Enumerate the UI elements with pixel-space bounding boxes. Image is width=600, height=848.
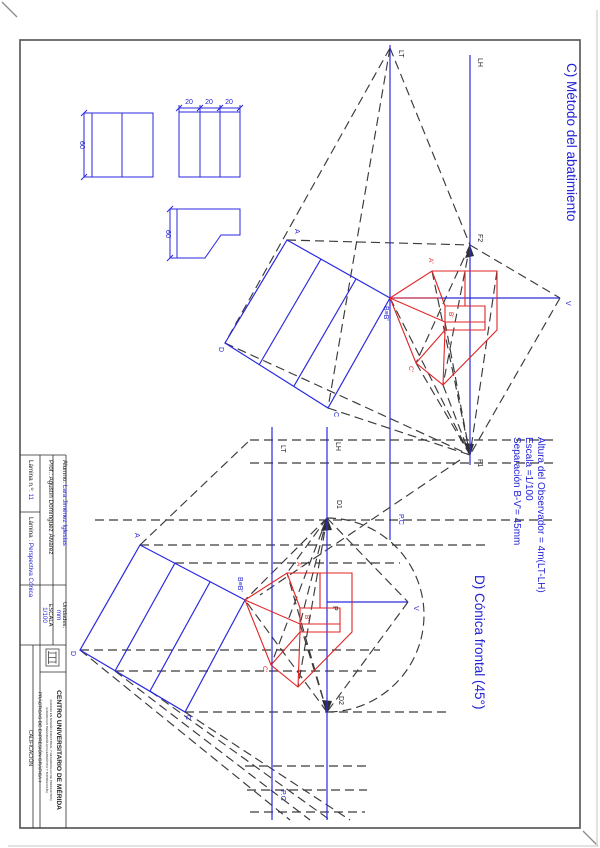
label-lh-lower: LH	[334, 442, 341, 451]
title-block: Alumno: Lara Jiménez Iglesias Prof.: Agu…	[20, 455, 68, 828]
label-v-lower: V	[412, 606, 419, 611]
lamina-num-row: Lámina n.º: 11	[27, 460, 34, 500]
label-d2: D2	[337, 696, 344, 705]
orthographic-views: 60 20 20 20 60	[78, 99, 243, 261]
label-c-prime-lower: C'	[261, 666, 268, 672]
plan-square-upper	[225, 240, 390, 408]
practicas-label: PRÁCTICAS DE EXPRESIÓN GRÁFICA-I	[37, 692, 44, 782]
label-b-prime-upper: B'	[447, 312, 454, 318]
label-lt-lower: LT	[279, 445, 286, 453]
label-lh-upper: LH	[476, 58, 483, 67]
lamina-num-label: Lámina n.º:	[27, 460, 34, 493]
lamina-num-value: 11	[27, 493, 34, 500]
dim-label-20-2: 20	[205, 99, 213, 106]
escala-value: 1/100	[41, 607, 48, 623]
label-c-prime-upper: C'	[407, 366, 414, 372]
plan-square-lower	[80, 545, 245, 712]
label-b-lower: B≡B'	[236, 577, 243, 592]
label-v-upper: V	[564, 301, 571, 306]
corner-mark-bottom-right	[583, 831, 598, 846]
unidades-value: mm	[55, 610, 62, 621]
centro-title: CENTRO UNIVERSITARIO DE MÉRIDA	[55, 690, 64, 810]
lamina-row: Lámina : Perspectiva Cónica	[27, 517, 34, 598]
dim-label-20-1: 20	[185, 99, 193, 106]
prof-label: Prof.:	[47, 460, 54, 476]
alumno-value: Lara Jiménez Iglesias	[61, 485, 68, 546]
page-edges	[2, 2, 598, 846]
university-logo-icon	[46, 649, 59, 666]
grados-line-2: (GRADO EN INGENIERÍA EN GEOMÁTICA Y TOPO…	[45, 707, 49, 792]
label-p-lower: P	[331, 606, 338, 611]
technical-drawing-svg: 60 20 20 20 60 LT LH F2 F1 V P.C A B≡B' …	[0, 0, 600, 848]
dim-label-60-front: 60	[78, 141, 87, 149]
label-a-prime-upper: A'	[427, 258, 434, 264]
construction-lines-upper	[225, 48, 560, 455]
distance-circle-arc	[327, 518, 424, 712]
label-b-upper: B≡B'	[382, 306, 389, 321]
section-d-title: D) Cónica frontal (45°)	[472, 575, 487, 709]
label-c-upper: C	[332, 412, 339, 417]
dim-label-20-3: 20	[225, 99, 233, 106]
label-a-prime-lower: A'	[295, 562, 302, 568]
label-b-prime-lower: B'	[303, 615, 310, 621]
corner-mark-top-left	[2, 2, 17, 17]
label-a-lower: A	[133, 533, 140, 538]
lamina-value: Perspectiva Cónica	[27, 543, 34, 598]
drawing-sheet: 60 20 20 20 60 LT LH F2 F1 V P.C A B≡B' …	[0, 0, 600, 848]
prof-row: Prof.: Agustín Domínguez Álvarez	[47, 460, 56, 555]
view-top	[179, 112, 240, 177]
label-d1: D1	[335, 500, 342, 509]
label-pc-lower: P.C	[279, 790, 286, 801]
section-c-title: C) Método del abatimiento	[564, 63, 579, 221]
alumno-row: Alumno: Lara Jiménez Iglesias	[61, 460, 68, 546]
label-d-upper: D	[217, 347, 224, 352]
label-f2: F2	[476, 234, 483, 242]
label-pc-upper: P.C	[397, 514, 404, 525]
logo-columns	[49, 651, 57, 664]
calificacion-label: CALIFICACIÓN	[27, 730, 34, 767]
alumno-label: Alumno:	[61, 460, 68, 485]
label-d-lower: D	[69, 651, 76, 656]
dim-line-20s	[176, 105, 243, 112]
annotations: C) Método del abatimiento D) Cónica fron…	[472, 63, 579, 709]
prof-value: Agustín Domínguez Álvarez	[47, 476, 56, 554]
note-separacion: Separación B-V'= 45mm	[511, 437, 522, 545]
dim-label-60-profile: 60	[164, 230, 173, 238]
label-a-upper: A	[293, 229, 300, 234]
note-escala: Escala =1/100	[523, 437, 534, 501]
label-c-lower: C	[184, 715, 191, 720]
drawing-frame	[20, 40, 580, 828]
lamina-label: Lámina :	[27, 517, 34, 543]
view-front	[92, 113, 153, 177]
label-lt-upper: LT	[397, 50, 404, 58]
view-profile	[177, 209, 240, 258]
note-altura: Altura del Observador = 4m(LT-LH)	[535, 437, 546, 593]
